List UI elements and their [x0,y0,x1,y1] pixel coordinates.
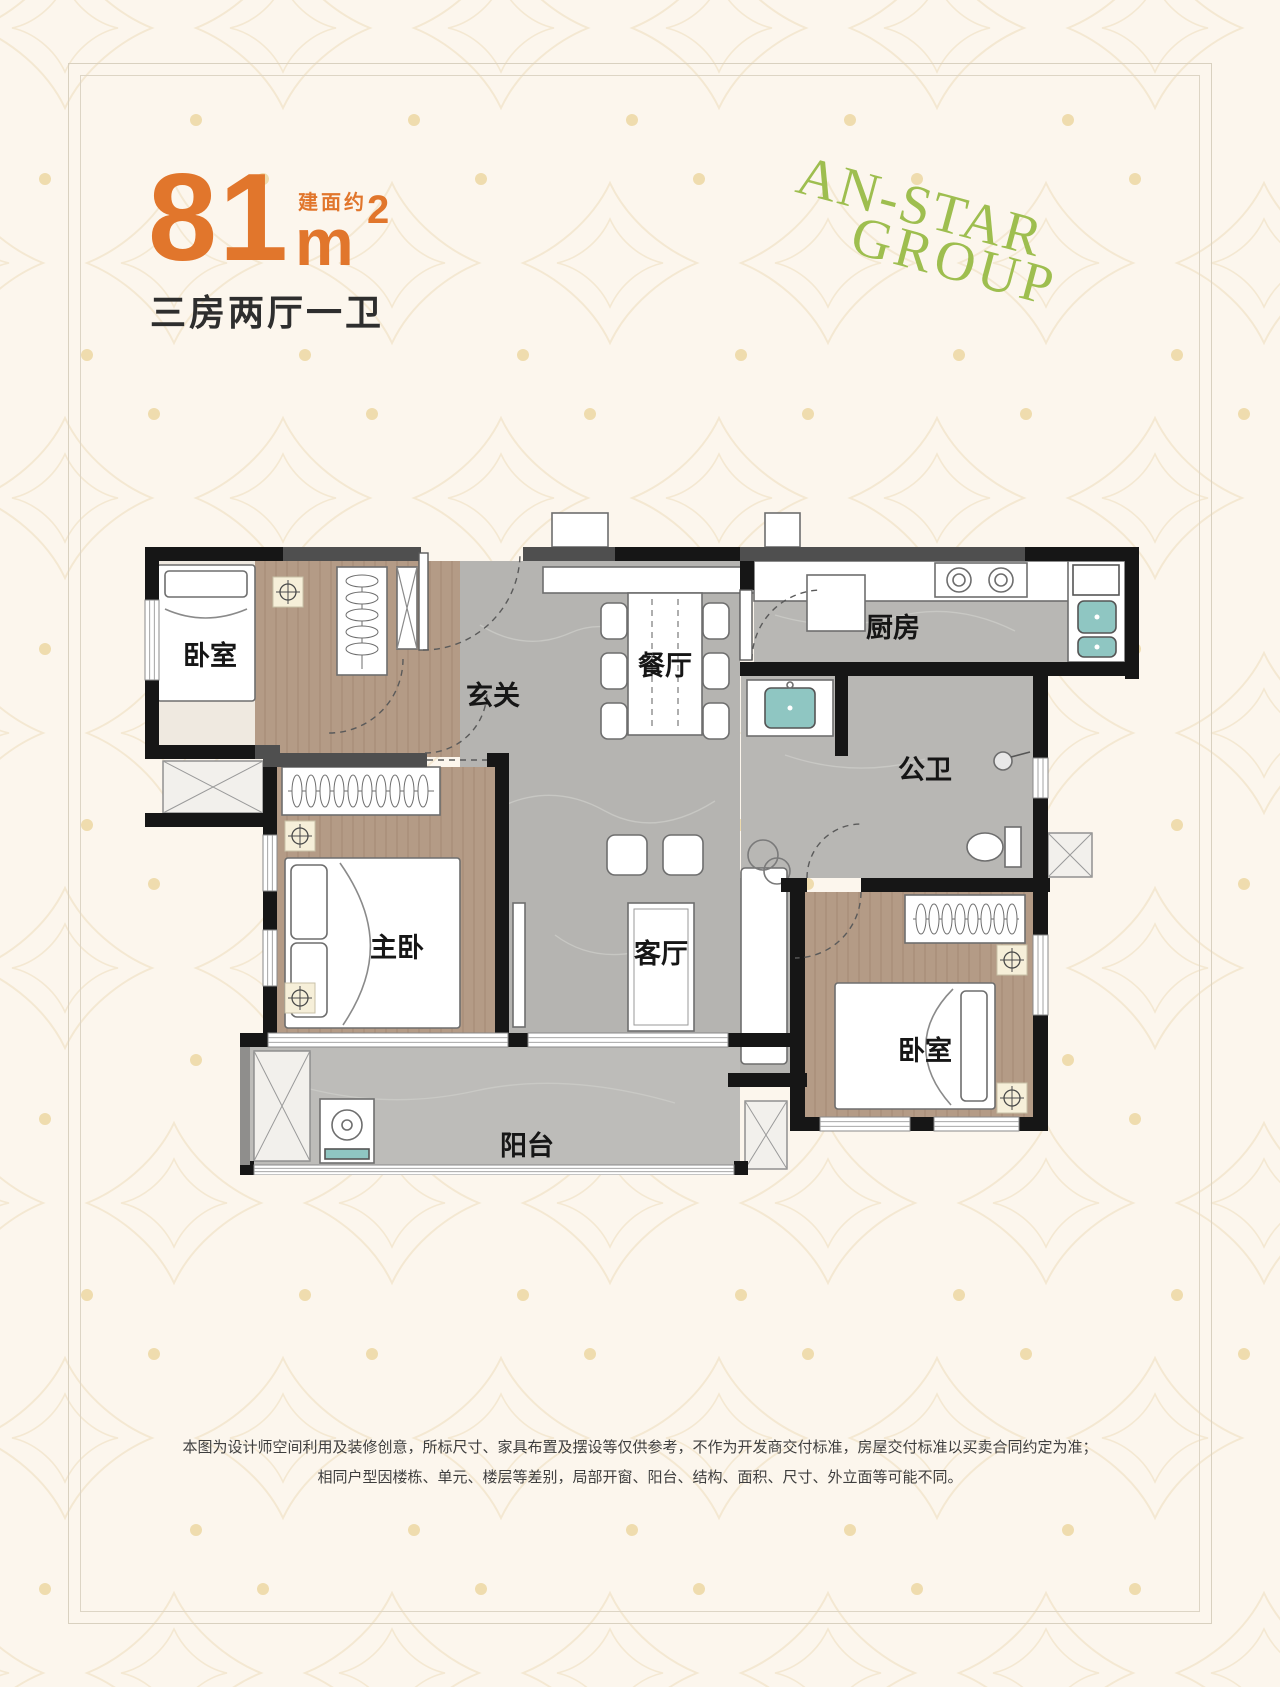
stool [663,835,703,875]
single-bed [157,565,255,701]
disclaimer-line2: 相同户型因楼栋、单元、楼层等差别，局部开窗、阳台、结构、面积、尺寸、外立面等可能… [0,1463,1280,1493]
room-label-bedroom-top-left: 卧室 [183,640,237,671]
stool [607,835,647,875]
kitchen-door-leaf [740,590,752,660]
room-label-hall: 玄关 [466,680,520,711]
bathroom-sink [747,680,833,736]
tv-cabinet [513,903,525,1027]
duct-box [552,513,608,547]
room-label-balcony: 阳台 [500,1130,554,1161]
disclaimer: 本图为设计师空间利用及装修创意，所标尺寸、家具布置及摆设等仅供参考，不作为开发商… [0,1433,1280,1493]
room-label-master-bedroom: 主卧 [370,933,424,963]
entry-cabinet [543,567,773,593]
area-value: 81 [148,160,290,278]
room-label-kitchen: 厨房 [866,613,920,643]
entry-door-leaf [419,553,428,650]
washing-machine [320,1099,374,1163]
layout-subtitle: 三房两厅一卫 [150,284,384,336]
area-superscript: 2 [367,188,389,233]
room-label-bathroom: 公卫 [898,755,952,785]
area-unit: m [295,204,354,280]
kitchen-sink [1078,601,1116,657]
fridge [807,575,865,631]
room-label-living: 客厅 [634,938,688,969]
stove-icon [935,563,1027,597]
floorplan-poster: 81 建面约 m 2 三房两厅一卫 AN-STAR GROUP [0,0,1280,1687]
disclaimer-line1: 本图为设计师空间利用及装修创意，所标尺寸、家具布置及摆设等仅供参考，不作为开发商… [0,1433,1280,1463]
floor-plan: 卧室 玄关 餐厅 厨房 公卫 主卧 客厅 卧室 阳台 [135,505,1140,1175]
room-label-dining: 餐厅 [638,651,692,681]
sofa [741,840,790,1064]
duct-box [765,513,800,547]
room-label-bedroom-right: 卧室 [898,1035,952,1066]
